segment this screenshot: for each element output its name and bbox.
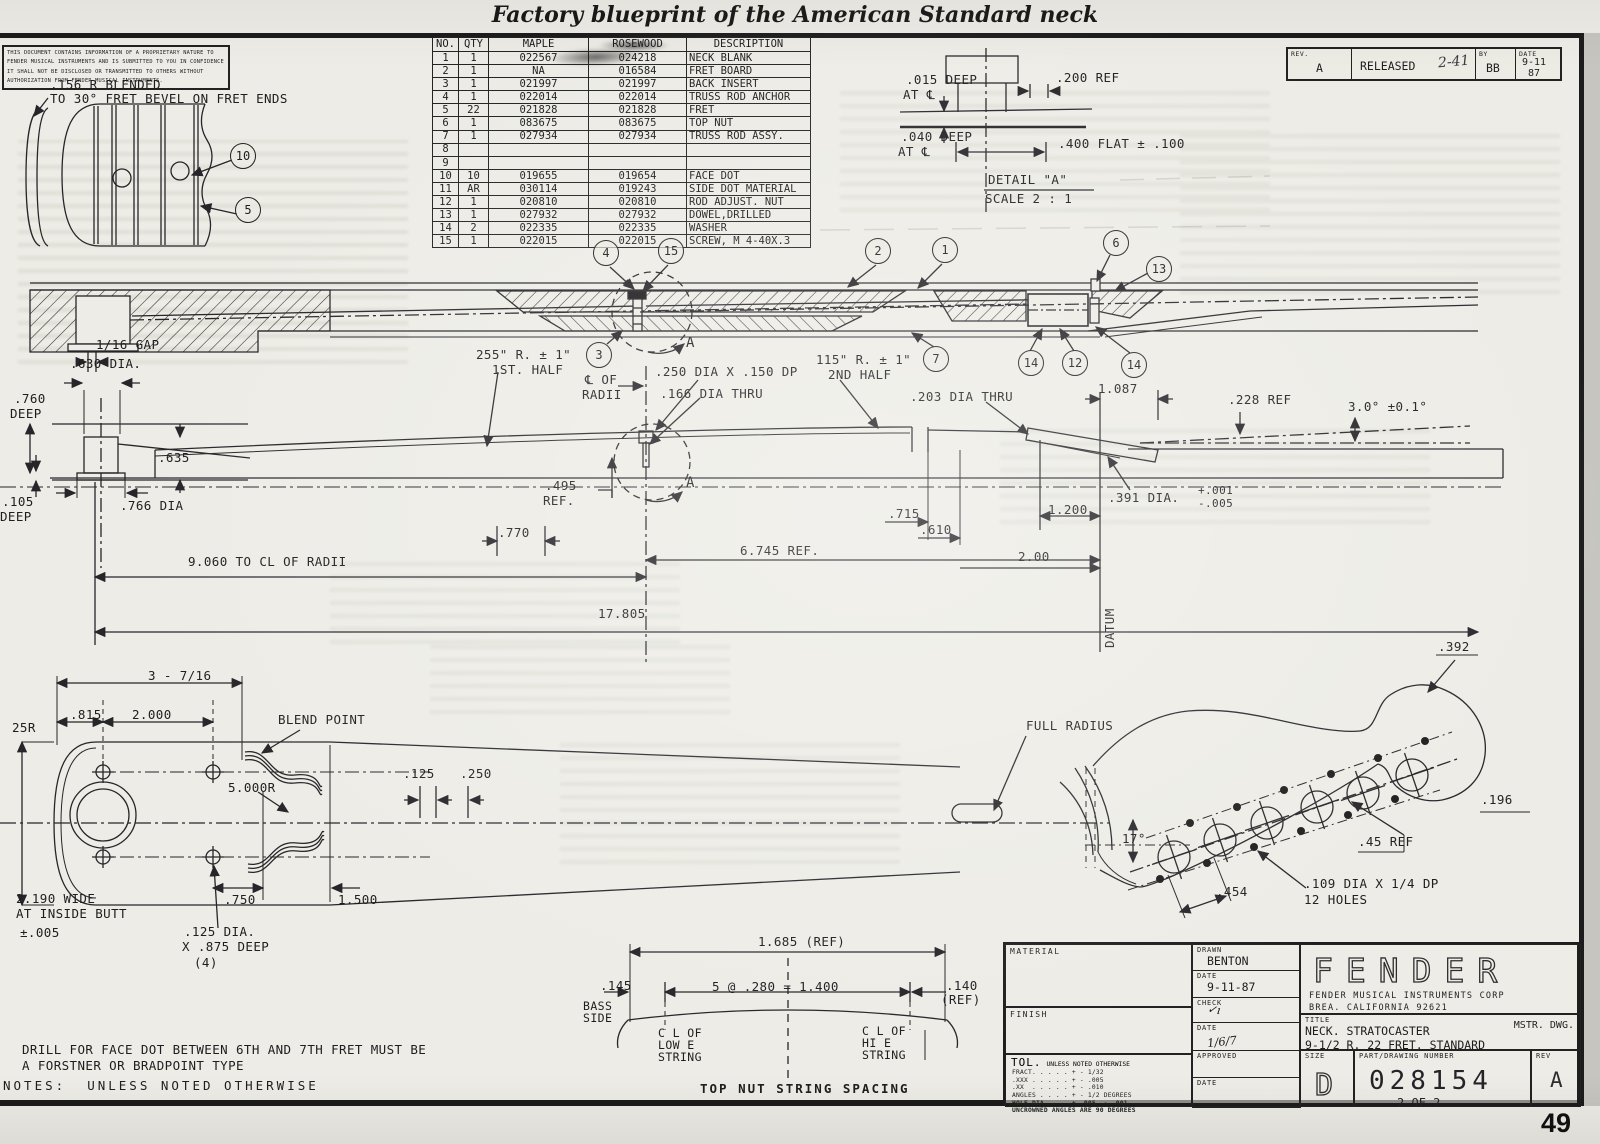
parts-cell: 3 bbox=[433, 78, 459, 91]
parts-row: 11022567024218NECK BLANK bbox=[433, 52, 811, 65]
material-label: MATERIAL bbox=[1006, 945, 1191, 956]
notes-header: NOTES: UNLESS NOTED OTHERWISE bbox=[3, 1080, 319, 1093]
dim-label: .040 DEEP bbox=[901, 131, 972, 144]
parts-cell: 1 bbox=[459, 235, 489, 248]
dim-label: DETAIL "A" bbox=[988, 174, 1067, 187]
dim-label: DEEP bbox=[10, 408, 42, 421]
parts-cell: WASHER bbox=[687, 222, 811, 235]
dim-label: (REF) bbox=[941, 994, 981, 1007]
dim-label: 17.805 bbox=[598, 608, 646, 621]
date1-label: DATE bbox=[1193, 971, 1300, 980]
part-balloon: 4 bbox=[593, 240, 619, 266]
parts-header: DESCRIPTION bbox=[687, 38, 811, 52]
dim-label: AT ℄ bbox=[898, 146, 930, 159]
parts-cell bbox=[459, 156, 489, 169]
finish-cell: FINISH bbox=[1005, 1007, 1192, 1054]
dim-label: AT INSIDE BUTT bbox=[16, 908, 127, 921]
rev-value: A bbox=[1316, 61, 1323, 75]
logo-cell: FENDER FENDER MUSICAL INSTRUMENTS CORP B… bbox=[1300, 944, 1581, 1014]
dim-label: AT ℄ bbox=[903, 89, 935, 102]
titleblock-rev-label: REV bbox=[1532, 1051, 1580, 1060]
parts-cell: TRUSS ROD ANCHOR bbox=[687, 91, 811, 104]
dim-label: .109 DIA X 1/4 DP bbox=[1304, 878, 1439, 891]
dim-label: .250 bbox=[460, 768, 492, 781]
parts-cell: 022567 bbox=[489, 52, 589, 65]
tolerance-line: ANGLES . . . . + - 1/2 DEGREES bbox=[1006, 1092, 1191, 1100]
part-number-cell: PART/DRAWING NUMBER 028154 2 OF 2 bbox=[1354, 1050, 1531, 1107]
parts-cell: 083675 bbox=[489, 117, 589, 130]
parts-cell: 022014 bbox=[589, 91, 687, 104]
finish-label: FINISH bbox=[1006, 1008, 1191, 1019]
parts-row: 71027934027934TRUSS ROD ASSY. bbox=[433, 130, 811, 143]
dim-label: .770 bbox=[498, 527, 530, 540]
view-title-top-nut: TOP NUT STRING SPACING bbox=[700, 1083, 910, 1096]
parts-cell: 1 bbox=[433, 52, 459, 65]
tolerance-line: HOLE DIA. . . + .005. - .001 bbox=[1006, 1100, 1191, 1108]
date1-value: 9-11-87 bbox=[1193, 980, 1300, 994]
dim-label: 1.685 (REF) bbox=[758, 936, 845, 949]
dim-label: .228 REF bbox=[1228, 394, 1291, 407]
part-balloon: 13 bbox=[1146, 256, 1172, 282]
released-label: RELEASED bbox=[1360, 59, 1415, 73]
parts-row: 11AR030114019243SIDE DOT MATERIAL bbox=[433, 182, 811, 195]
dim-label: 2.00 bbox=[1018, 551, 1050, 564]
dim-label: .400 FLAT ± .100 bbox=[1058, 138, 1185, 151]
dim-label: 5 @ .280 = 1.400 bbox=[712, 981, 839, 994]
dim-label: .630 DIA. bbox=[70, 358, 141, 371]
dim-label: 2.190 WIDE bbox=[16, 893, 95, 906]
dim-label: TO 30° FRET BEVEL ON FRET ENDS bbox=[50, 93, 288, 106]
parts-cell: 021828 bbox=[589, 104, 687, 117]
dim-label: .454 bbox=[1216, 886, 1248, 899]
parts-cell: 019654 bbox=[589, 169, 687, 182]
drawn-value: BENTON bbox=[1193, 954, 1300, 968]
dim-label: 2.000 bbox=[132, 709, 172, 722]
sheet-count: 2 OF 2 bbox=[1355, 1096, 1530, 1110]
parts-cell: 14 bbox=[433, 222, 459, 235]
parts-row: 121020810020810ROD ADJUST. NUT bbox=[433, 196, 811, 209]
dim-label: .125 DIA. bbox=[184, 926, 255, 939]
dim-label: ±.005 bbox=[20, 927, 60, 940]
parts-cell: FRET BOARD bbox=[687, 65, 811, 78]
scanned-blueprint-page: Factory blueprint of the American Standa… bbox=[0, 0, 1600, 1144]
part-balloon: 6 bbox=[1103, 230, 1129, 256]
parts-row: 31021997021997BACK INSERT bbox=[433, 78, 811, 91]
dim-label: .392 bbox=[1438, 641, 1470, 654]
part-balloon: 3 bbox=[586, 342, 612, 368]
dim-label: .610 bbox=[920, 524, 952, 537]
note-line: A FORSTNER OR BRADPOINT TYPE bbox=[22, 1060, 244, 1073]
notice-line: THIS DOCUMENT CONTAINS INFORMATION OF A … bbox=[7, 49, 225, 58]
tol-label: TOL. bbox=[1006, 1055, 1042, 1069]
parts-cell: 022014 bbox=[489, 91, 589, 104]
parts-cell bbox=[687, 143, 811, 156]
drawn-label: DRAWN bbox=[1193, 945, 1300, 954]
parts-cell: 1 bbox=[459, 78, 489, 91]
notice-line: IT SHALL NOT BE DISCLOSED OR TRANSMITTED… bbox=[7, 68, 225, 77]
parts-cell: 12 bbox=[433, 196, 459, 209]
parts-cell: 13 bbox=[433, 209, 459, 222]
part-balloon: 12 bbox=[1062, 350, 1088, 376]
heel-section-detail bbox=[30, 383, 250, 568]
parts-cell: 5 bbox=[433, 104, 459, 117]
parts-cell: 11 bbox=[433, 182, 459, 195]
titleblock-rev-cell: REV A bbox=[1531, 1050, 1581, 1107]
parts-cell: 22 bbox=[459, 104, 489, 117]
title-cell: TITLE NECK. STRATOCASTER 9-1/2 R. 22 FRE… bbox=[1300, 1014, 1581, 1050]
parts-cell: 027934 bbox=[589, 130, 687, 143]
parts-cell bbox=[489, 143, 589, 156]
corp-line2: BREA. CALIFORNIA 92621 bbox=[1301, 1002, 1580, 1014]
date3-label: DATE bbox=[1193, 1078, 1300, 1087]
page-number: 49 bbox=[1541, 1108, 1571, 1139]
parts-cell: FACE DOT bbox=[687, 169, 811, 182]
titleblock-rev-value: A bbox=[1532, 1060, 1580, 1092]
signoff-column: DRAWN BENTON DATE 9-11-87 CHECK ✓ı DATE … bbox=[1192, 944, 1300, 1107]
dim-label: .250 DIA X .150 DP bbox=[655, 366, 798, 379]
date1-cell: DATE 9-11-87 bbox=[1192, 970, 1301, 998]
parts-cell: AR bbox=[459, 182, 489, 195]
dim-label: STRING bbox=[658, 1052, 702, 1064]
parts-cell: 9 bbox=[433, 156, 459, 169]
dim-label: .156 R BLENDED bbox=[50, 79, 161, 92]
dim-label: .635 bbox=[158, 452, 190, 465]
parts-cell bbox=[589, 143, 687, 156]
dim-label: 3 - 7/16 bbox=[148, 670, 211, 683]
string-guide-holes bbox=[1156, 737, 1429, 883]
dim-label: .140 bbox=[946, 980, 978, 993]
parts-cell: 2 bbox=[459, 222, 489, 235]
parts-header: ROSEWOOD bbox=[589, 38, 687, 52]
parts-cell: BACK INSERT bbox=[687, 78, 811, 91]
note-line: DRILL FOR FACE DOT BETWEEN 6TH AND 7TH F… bbox=[22, 1044, 426, 1057]
tol-note: UNLESS NOTED OTHERWISE bbox=[1042, 1061, 1130, 1068]
material-cell: MATERIAL bbox=[1005, 944, 1192, 1007]
check-cell: CHECK ✓ı bbox=[1192, 997, 1301, 1023]
dim-label: DEEP bbox=[0, 511, 32, 524]
parts-cell: 019655 bbox=[489, 169, 589, 182]
parts-cell: 022015 bbox=[489, 235, 589, 248]
dim-label: .766 DIA bbox=[120, 500, 183, 513]
dim-label: .196 bbox=[1481, 794, 1513, 807]
dim-label: A bbox=[686, 476, 695, 490]
drawn-cell: DRAWN BENTON bbox=[1192, 944, 1301, 971]
dim-label: ℄ OF bbox=[585, 374, 617, 387]
parts-cell: FRET bbox=[687, 104, 811, 117]
dim-label: 12 HOLES bbox=[1304, 894, 1367, 907]
parts-cell: 7 bbox=[433, 130, 459, 143]
parts-row: 61083675083675TOP NUT bbox=[433, 117, 811, 130]
dim-label: .105 bbox=[2, 496, 34, 509]
dim-label: .200 REF bbox=[1056, 72, 1119, 85]
rev-cell: REV. A bbox=[1288, 49, 1352, 79]
dim-label: 115" R. ± 1" bbox=[816, 354, 911, 367]
parts-cell: 027934 bbox=[489, 130, 589, 143]
parts-cell bbox=[687, 156, 811, 169]
dim-label: 1.087 bbox=[1098, 383, 1138, 396]
dim-label: STRING bbox=[862, 1050, 906, 1062]
dim-label: .760 bbox=[14, 393, 46, 406]
parts-row: 41022014022014TRUSS ROD ANCHOR bbox=[433, 91, 811, 104]
parts-cell: 020810 bbox=[489, 196, 589, 209]
fretboard-top-view bbox=[26, 98, 237, 246]
part-balloon: 10 bbox=[230, 143, 256, 169]
part-number-label: PART/DRAWING NUMBER bbox=[1355, 1051, 1530, 1060]
dim-label: .166 DIA THRU bbox=[660, 388, 763, 401]
dim-label: REF. bbox=[543, 495, 575, 508]
dim-label: SCALE 2 : 1 bbox=[985, 193, 1072, 206]
revision-strip: REV. A RELEASED 2-41 BY BB DATE 9-11 87 bbox=[1286, 47, 1562, 81]
parts-cell bbox=[459, 143, 489, 156]
dim-label: .750 bbox=[224, 894, 256, 907]
parts-cell: 021828 bbox=[489, 104, 589, 117]
tolerance-line: FRACT. . . . . + - 1/32 bbox=[1006, 1069, 1191, 1077]
part-balloon: 1 bbox=[932, 237, 958, 263]
parts-table-header: NO.QTYMAPLEROSEWOODDESCRIPTION bbox=[433, 38, 811, 52]
parts-cell: 027932 bbox=[489, 209, 589, 222]
part-balloon: 2 bbox=[865, 238, 891, 264]
dim-label: 3.0° ±0.1° bbox=[1348, 401, 1427, 414]
dim-label: RADII bbox=[582, 389, 622, 402]
dim-label: .715 bbox=[888, 508, 920, 521]
parts-row: 9 bbox=[433, 156, 811, 169]
dim-label: 9.060 TO CL OF RADII bbox=[188, 556, 347, 569]
dim-label: .145 bbox=[600, 980, 632, 993]
dim-label: 1/16 GAP bbox=[96, 339, 159, 352]
parts-cell: 6 bbox=[433, 117, 459, 130]
headstock-plan-view bbox=[994, 655, 1530, 918]
dim-label: 2ND HALF bbox=[828, 369, 891, 382]
dim-label: +.001 bbox=[1198, 485, 1233, 496]
parts-cell: 1 bbox=[459, 209, 489, 222]
tolerance-line: .XXX . . . . . + - .005 bbox=[1006, 1077, 1191, 1085]
part-balloon: 14 bbox=[1121, 352, 1147, 378]
parts-cell: 8 bbox=[433, 143, 459, 156]
parts-cell: 016584 bbox=[589, 65, 687, 78]
dim-label: .495 bbox=[545, 480, 577, 493]
parts-row: 522021828021828FRET bbox=[433, 104, 811, 117]
parts-cell: 027932 bbox=[589, 209, 687, 222]
date-value: 9-11 bbox=[1522, 57, 1546, 68]
date3-cell: DATE bbox=[1192, 1077, 1301, 1108]
parts-cell: 021997 bbox=[589, 78, 687, 91]
mstr-dwg-label: MSTR. DWG. bbox=[1514, 1020, 1574, 1031]
parts-cell: 020810 bbox=[589, 196, 687, 209]
title-block: MATERIAL FINISH TOL. UNLESS NOTED OTHERW… bbox=[1003, 942, 1579, 1105]
parts-cell: 1 bbox=[459, 117, 489, 130]
parts-row: 151022015022015SCREW, M 4-40X.3 bbox=[433, 235, 811, 248]
parts-cell: NA bbox=[489, 65, 589, 78]
dim-label: .015 DEEP bbox=[906, 74, 977, 87]
date2-cell: DATE 1/6/7 bbox=[1192, 1022, 1301, 1051]
parts-cell: 022335 bbox=[489, 222, 589, 235]
corp-line1: FENDER MUSICAL INSTRUMENTS CORP bbox=[1301, 990, 1580, 1002]
dim-label: (4) bbox=[194, 957, 218, 970]
datum-label: DATUM bbox=[1104, 608, 1117, 648]
parts-cell: DOWEL,DRILLED bbox=[687, 209, 811, 222]
dim-label: .45 REF bbox=[1358, 836, 1413, 849]
parts-cell: 15 bbox=[433, 235, 459, 248]
tolerance-line: .XX . . . . . + - .010 bbox=[1006, 1084, 1191, 1092]
parts-cell: SCREW, M 4-40X.3 bbox=[687, 235, 811, 248]
part-balloon: 15 bbox=[658, 238, 684, 264]
by-value: BB bbox=[1486, 61, 1500, 75]
parts-row: 8 bbox=[433, 143, 811, 156]
dim-label: -.005 bbox=[1198, 498, 1233, 509]
parts-cell: 022335 bbox=[589, 222, 687, 235]
parts-cell: 1 bbox=[459, 52, 489, 65]
part-balloon: 14 bbox=[1018, 350, 1044, 376]
dim-label: A bbox=[686, 336, 695, 350]
size-label: SIZE bbox=[1301, 1051, 1353, 1060]
size-value: D bbox=[1301, 1060, 1353, 1103]
parts-cell: ROD ADJUST. NUT bbox=[687, 196, 811, 209]
fender-logo: FENDER bbox=[1301, 945, 1580, 990]
dim-label: .391 DIA. bbox=[1108, 492, 1179, 505]
parts-cell: 1 bbox=[459, 196, 489, 209]
approved-label: APPROVED bbox=[1193, 1051, 1300, 1060]
size-cell: SIZE D bbox=[1300, 1050, 1354, 1107]
dim-label: .815 bbox=[70, 709, 102, 722]
dim-label: 5.000R bbox=[228, 782, 276, 795]
part-balloon: 5 bbox=[235, 197, 261, 223]
parts-table: NO.QTYMAPLEROSEWOODDESCRIPTION 110225670… bbox=[432, 37, 811, 248]
parts-cell bbox=[589, 156, 687, 169]
date-cell: DATE 9-11 87 bbox=[1516, 49, 1560, 79]
dim-label: 1.500 bbox=[338, 894, 378, 907]
parts-cell: 2 bbox=[433, 65, 459, 78]
parts-cell: 4 bbox=[433, 91, 459, 104]
approved-cell: APPROVED bbox=[1192, 1050, 1301, 1078]
parts-cell: 1 bbox=[459, 65, 489, 78]
parts-cell: SIDE DOT MATERIAL bbox=[687, 182, 811, 195]
parts-cell: 10 bbox=[433, 169, 459, 182]
parts-cell bbox=[489, 156, 589, 169]
parts-header: NO. bbox=[433, 38, 459, 52]
tolerance-line: UNCROWNED ANGLES ARE 90 DEGREES bbox=[1006, 1107, 1191, 1115]
date-year: 87 bbox=[1528, 68, 1540, 79]
by-label: BY bbox=[1479, 50, 1488, 58]
dim-label: 25R bbox=[12, 722, 36, 735]
parts-row: 142022335022335WASHER bbox=[433, 222, 811, 235]
parts-row: 21NA016584FRET BOARD bbox=[433, 65, 811, 78]
dim-label: .203 DIA THRU bbox=[910, 391, 1013, 404]
by-cell: BY BB bbox=[1476, 49, 1516, 79]
parts-cell: TRUSS ROD ASSY. bbox=[687, 130, 811, 143]
dim-label: 1ST. HALF bbox=[492, 364, 563, 377]
dim-label: 6.745 REF. bbox=[740, 545, 819, 558]
released-handwritten: 2-41 bbox=[1437, 53, 1470, 72]
dim-label: BLEND POINT bbox=[278, 714, 365, 727]
parts-cell: 021997 bbox=[489, 78, 589, 91]
parts-cell: 1 bbox=[459, 91, 489, 104]
parts-cell: 024218 bbox=[589, 52, 687, 65]
parts-row: 1010019655019654FACE DOT bbox=[433, 169, 811, 182]
parts-cell: 019243 bbox=[589, 182, 687, 195]
parts-cell: 083675 bbox=[589, 117, 687, 130]
notice-line: FENDER MUSICAL INSTRUMENTS AND IS SUBMIT… bbox=[7, 58, 225, 67]
rev-label: REV. bbox=[1291, 50, 1309, 58]
dim-label: FULL RADIUS bbox=[1026, 720, 1113, 733]
parts-header: QTY bbox=[459, 38, 489, 52]
parts-cell: NECK BLANK bbox=[687, 52, 811, 65]
dim-label: 255" R. ± 1" bbox=[476, 349, 571, 362]
tolerance-cell: TOL. UNLESS NOTED OTHERWISE FRACT. . . .… bbox=[1005, 1054, 1192, 1107]
dim-label: 17° bbox=[1122, 833, 1146, 846]
part-number-value: 028154 bbox=[1355, 1060, 1530, 1096]
parts-cell: TOP NUT bbox=[687, 117, 811, 130]
parts-cell: 030114 bbox=[489, 182, 589, 195]
dim-label: X .875 DEEP bbox=[182, 941, 269, 954]
parts-row: 131027932027932DOWEL,DRILLED bbox=[433, 209, 811, 222]
parts-header: MAPLE bbox=[489, 38, 589, 52]
dim-label: .125 bbox=[403, 768, 435, 781]
parts-cell: 1 bbox=[459, 130, 489, 143]
dim-label: 1.200 bbox=[1048, 504, 1088, 517]
parts-cell: 10 bbox=[459, 169, 489, 182]
part-balloon: 7 bbox=[923, 346, 949, 372]
dim-label: SIDE bbox=[583, 1013, 612, 1025]
released-cell: RELEASED 2-41 bbox=[1352, 49, 1476, 79]
